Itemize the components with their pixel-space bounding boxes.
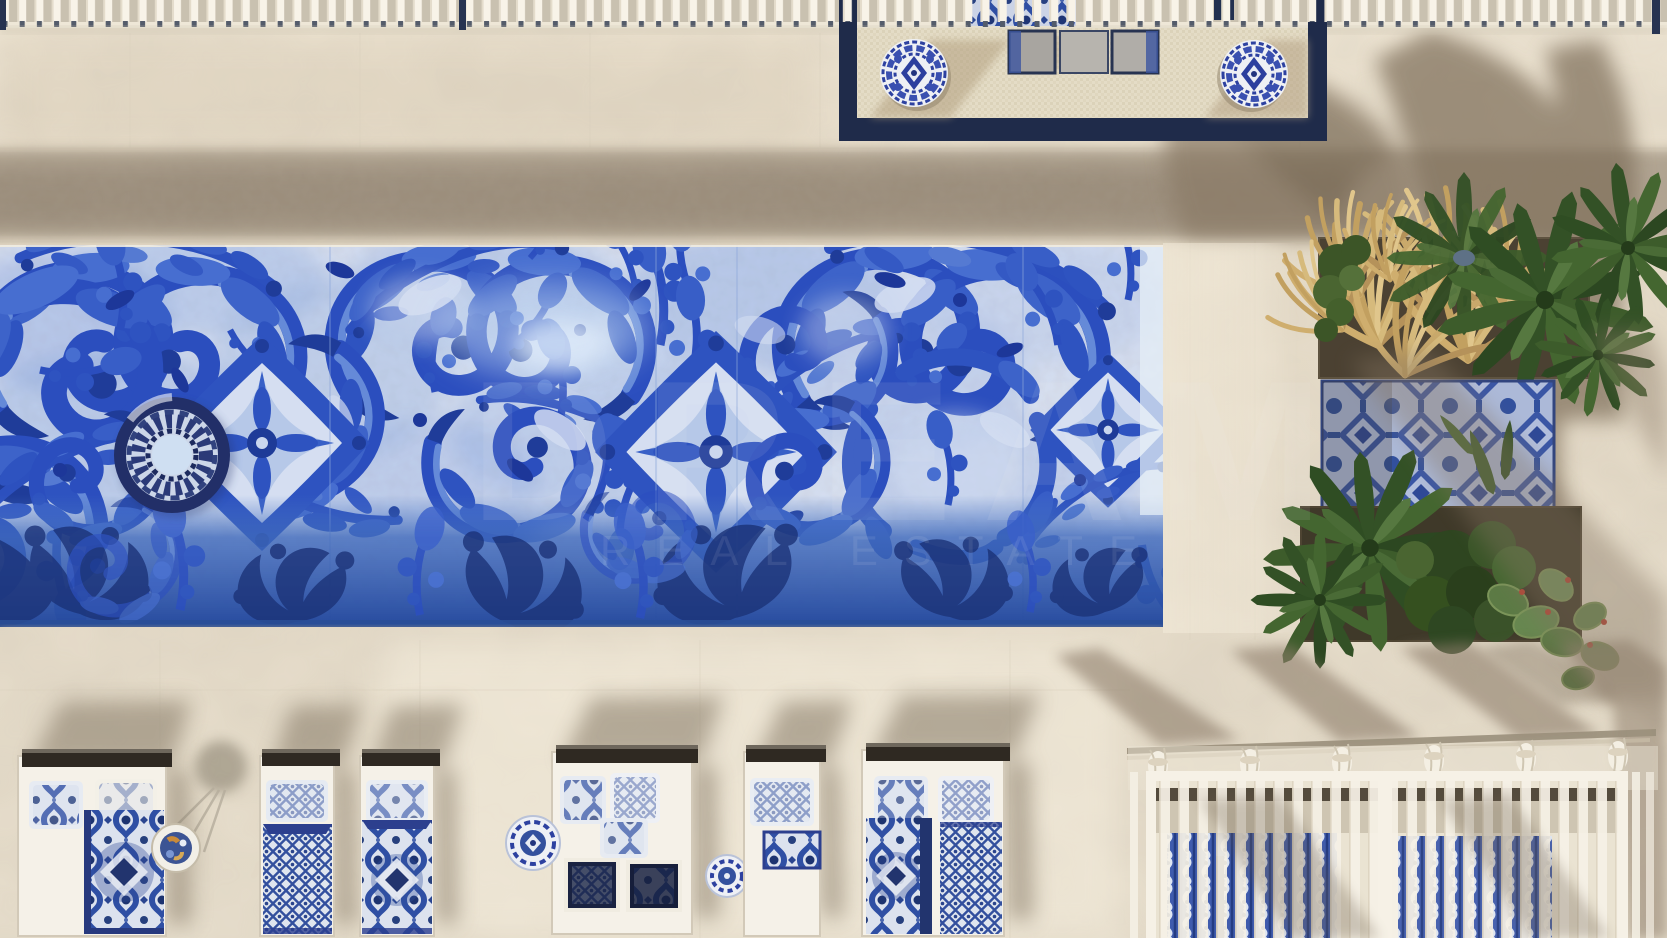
svg-text:REAL ESTATE: REAL ESTATE — [600, 527, 1163, 574]
